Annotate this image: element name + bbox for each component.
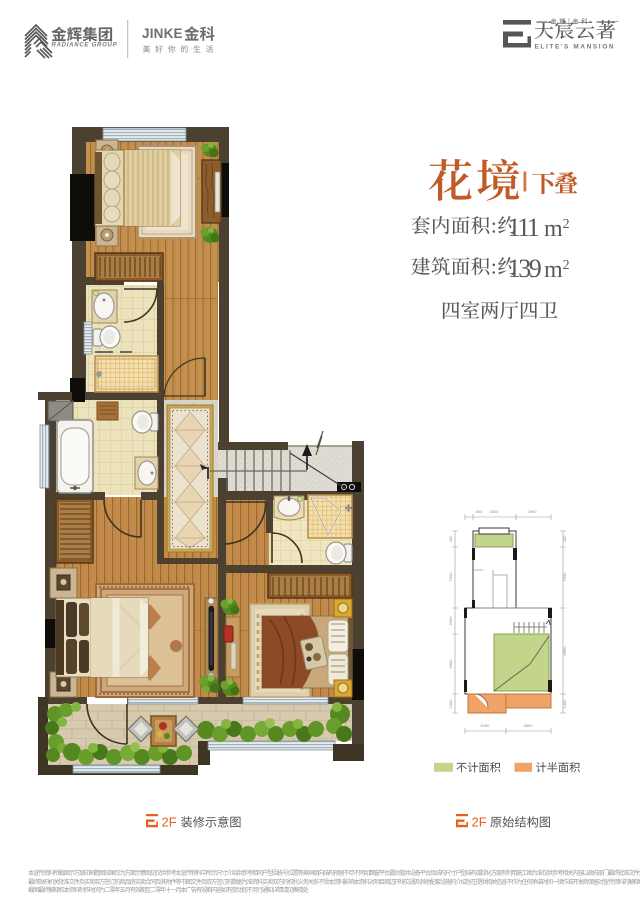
svg-text:400: 400	[448, 535, 453, 542]
svg-text:2F: 2F	[472, 815, 487, 830]
svg-text:1400: 1400	[562, 699, 567, 709]
svg-text:JINKE: JINKE	[142, 26, 183, 41]
svg-text:本宣传资料所载图示方案印刷题图效果仅为方案示意图见仅供参考本: 本宣传资料所载图示方案印刷题图效果仅为方案示意图见仅供参考本宣传物料中所示尺寸介…	[28, 869, 640, 877]
svg-text:RADIANCE GROUP: RADIANCE GROUP	[52, 43, 118, 49]
svg-text:7900: 7900	[562, 572, 567, 582]
svg-text:6800: 6800	[562, 646, 567, 656]
svg-text:7900: 7900	[448, 572, 453, 582]
svg-text:2F: 2F	[162, 815, 177, 830]
svg-text:6000: 6000	[448, 659, 453, 669]
svg-text:m2: m2	[544, 257, 570, 283]
svg-text:1900: 1900	[448, 699, 453, 709]
svg-text:139: 139	[508, 254, 541, 283]
svg-text:400: 400	[562, 535, 567, 542]
svg-text:截图最终解释权本资料制作时间为二零年五月有效期至二零年十一月: 截图最终解释权本资料制作时间为二零年五月有效期至二零年十一月本广告有效期内容如有…	[28, 886, 309, 894]
svg-text:2900: 2900	[528, 509, 538, 514]
svg-text:5150: 5150	[481, 723, 491, 728]
svg-text:111: 111	[508, 213, 539, 242]
svg-text:850: 850	[476, 509, 483, 514]
svg-text:ELITE'S MANSION: ELITE'S MANSION	[535, 44, 616, 51]
svg-text:最终政府机关批准文件及买卖双方签订的商品房买卖合同及其附件等: 最终政府机关批准文件及买卖双方签订的商品房买卖合同及其附件等书面文件及双方签订的…	[28, 878, 640, 886]
svg-text:3800: 3800	[524, 723, 534, 728]
svg-text:3000: 3000	[490, 509, 500, 514]
svg-text:m2: m2	[544, 216, 570, 242]
svg-text:2600: 2600	[448, 616, 453, 626]
